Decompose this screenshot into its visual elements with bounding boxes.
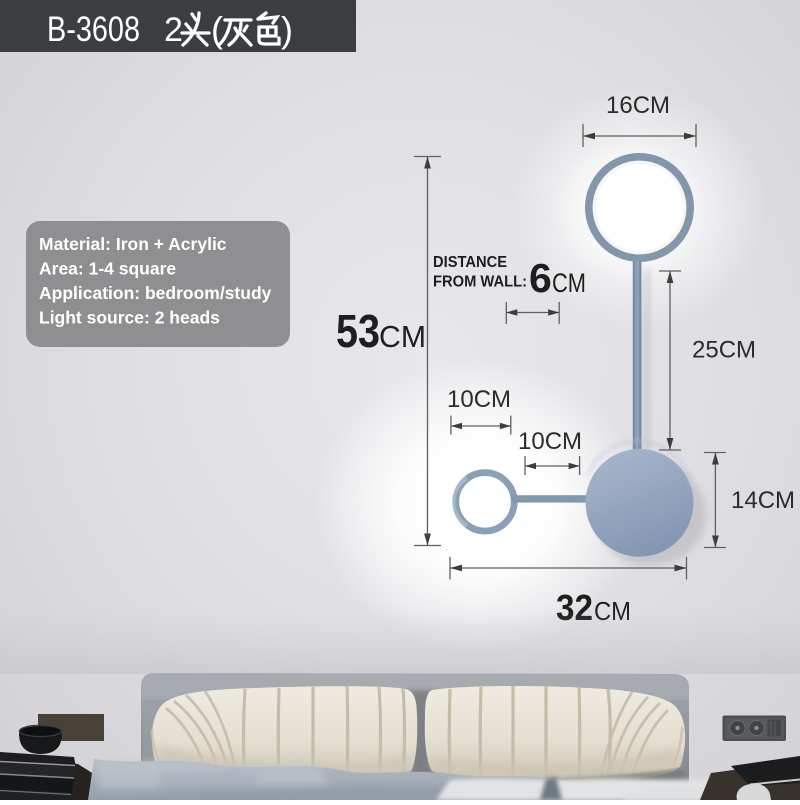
svg-text:53: 53 xyxy=(336,305,380,357)
svg-text:10CM: 10CM xyxy=(518,428,582,455)
svg-text:): ) xyxy=(281,9,293,50)
svg-text:Area: 1-4 square: Area: 1-4 square xyxy=(39,259,176,279)
svg-text:6: 6 xyxy=(529,255,552,301)
svg-text:Application: bedroom/study: Application: bedroom/study xyxy=(39,283,272,303)
svg-text:Material: Iron + Acrylic: Material: Iron + Acrylic xyxy=(39,234,227,254)
svg-text:16CM: 16CM xyxy=(606,92,670,119)
svg-text:14CM: 14CM xyxy=(731,487,795,514)
svg-text:B-3608: B-3608 xyxy=(47,10,140,49)
svg-text:DISTANCE: DISTANCE xyxy=(433,254,507,271)
svg-text:25CM: 25CM xyxy=(692,337,756,364)
svg-text:2: 2 xyxy=(164,11,183,49)
svg-text:CM: CM xyxy=(552,268,586,298)
svg-text:10CM: 10CM xyxy=(447,386,511,413)
svg-text:FROM WALL:: FROM WALL: xyxy=(433,274,527,291)
svg-text:Light source: 2 heads: Light source: 2 heads xyxy=(39,308,220,328)
svg-text:CM: CM xyxy=(379,319,426,354)
